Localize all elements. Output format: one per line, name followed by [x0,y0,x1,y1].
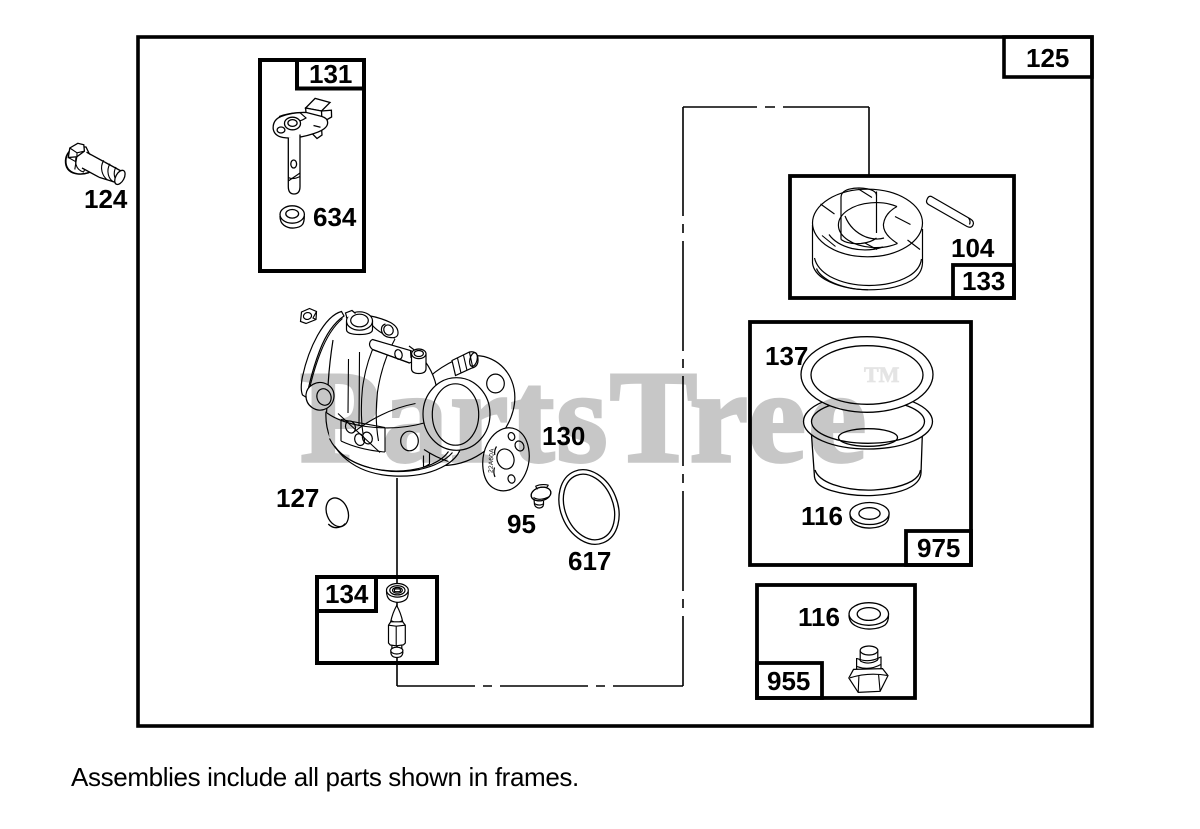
svg-text:617: 617 [568,546,611,576]
svg-text:131: 131 [309,59,352,89]
svg-text:133: 133 [962,266,1005,296]
svg-text:TM: TM [864,362,900,387]
svg-text:125: 125 [1026,43,1069,73]
svg-text:955: 955 [767,666,810,696]
svg-text:134: 134 [325,579,369,609]
svg-text:116: 116 [801,501,843,531]
svg-text:634: 634 [313,202,357,232]
svg-text:95: 95 [507,509,536,539]
svg-text:124: 124 [84,184,128,214]
svg-text:104: 104 [951,233,995,263]
svg-text:PartsTree: PartsTree [300,345,869,490]
svg-text:975: 975 [917,533,960,563]
svg-text:116: 116 [798,602,840,632]
